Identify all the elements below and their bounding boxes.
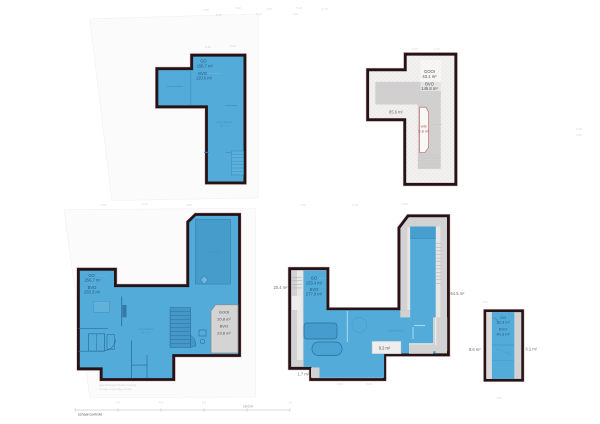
svg-text:5.60: 5.60 xyxy=(256,12,262,16)
svg-text:43.1 m²: 43.1 m² xyxy=(422,74,437,79)
svg-text:6.10: 6.10 xyxy=(235,6,241,10)
svg-text:5.90: 5.90 xyxy=(402,202,408,206)
svg-text:9.2 m²: 9.2 m² xyxy=(379,346,391,351)
svg-text:6.1 m²: 6.1 m² xyxy=(526,346,538,351)
svg-text:3.60: 3.60 xyxy=(482,300,488,304)
svg-text:1.7 m²: 1.7 m² xyxy=(298,372,310,377)
svg-text:4.60: 4.60 xyxy=(300,203,306,207)
svg-text:3.95: 3.95 xyxy=(266,7,272,11)
svg-text:4.25: 4.25 xyxy=(203,8,209,12)
svg-text:52.4 m²: 52.4 m² xyxy=(141,330,151,334)
svg-text:145.8 m²: 145.8 m² xyxy=(421,86,438,91)
svg-text:8.35: 8.35 xyxy=(216,13,222,17)
svg-text:BVO: BVO xyxy=(220,324,228,329)
svg-text:6.40: 6.40 xyxy=(412,47,418,51)
svg-text:7.20: 7.20 xyxy=(292,12,298,16)
svg-text:5.30: 5.30 xyxy=(296,6,302,10)
svg-text:153.4 m²: 153.4 m² xyxy=(306,281,323,286)
svg-text:20.4 m²: 20.4 m² xyxy=(274,285,289,290)
svg-text:3.20: 3.20 xyxy=(230,44,236,48)
svg-text:23.8 m²: 23.8 m² xyxy=(217,331,231,336)
svg-text:20.8 m²: 20.8 m² xyxy=(217,317,231,322)
svg-text:3.70: 3.70 xyxy=(352,203,358,207)
svg-text:4.95: 4.95 xyxy=(337,382,343,386)
svg-text:vide: vide xyxy=(421,125,427,129)
svg-text:GOOI: GOOI xyxy=(219,310,229,315)
svg-text:8.6 m²: 8.6 m² xyxy=(469,347,481,352)
svg-text:120.6 m²: 120.6 m² xyxy=(196,75,213,80)
svg-text:3.90: 3.90 xyxy=(186,203,192,207)
svg-text:6.0: 6.0 xyxy=(202,401,207,405)
svg-text:4.50: 4.50 xyxy=(576,133,582,137)
svg-text:4.30: 4.30 xyxy=(100,203,106,207)
svg-text:2.75: 2.75 xyxy=(322,7,328,11)
svg-text:6.25: 6.25 xyxy=(142,202,148,206)
svg-text:slaapkamer: slaapkamer xyxy=(388,329,404,333)
svg-text:106.7 m²: 106.7 m² xyxy=(197,63,214,68)
svg-text:10.0 m: 10.0 m xyxy=(243,405,253,409)
svg-text:283.3 m²: 283.3 m² xyxy=(84,289,101,294)
svg-text:28.1 m²: 28.1 m² xyxy=(220,123,230,127)
svg-text:schaal controle: schaal controle xyxy=(78,412,102,416)
svg-text:40.3 m²: 40.3 m² xyxy=(496,331,510,336)
svg-text:2.0: 2.0 xyxy=(116,401,121,405)
svg-text:3.60: 3.60 xyxy=(496,396,502,400)
svg-text:277.9 m²: 277.9 m² xyxy=(306,292,323,297)
svg-text:dakterras: dakterras xyxy=(209,250,222,254)
svg-text:overige inpandige ruimte: overige inpandige ruimte xyxy=(99,387,132,391)
svg-text:64.5 m²: 64.5 m² xyxy=(451,291,466,296)
svg-text:2.15: 2.15 xyxy=(576,127,582,131)
svg-text:5.45: 5.45 xyxy=(205,45,211,49)
svg-text:10: 10 xyxy=(288,401,292,405)
svg-text:3.25: 3.25 xyxy=(366,382,372,386)
svg-text:4.0: 4.0 xyxy=(159,401,164,405)
svg-text:3.15: 3.15 xyxy=(434,47,440,51)
svg-text:23.3 m²: 23.3 m² xyxy=(496,320,510,325)
svg-text:5.8 m²: 5.8 m² xyxy=(418,130,429,134)
svg-text:85.6 m²: 85.6 m² xyxy=(389,109,404,114)
svg-text:256.7 m²: 256.7 m² xyxy=(85,277,102,282)
